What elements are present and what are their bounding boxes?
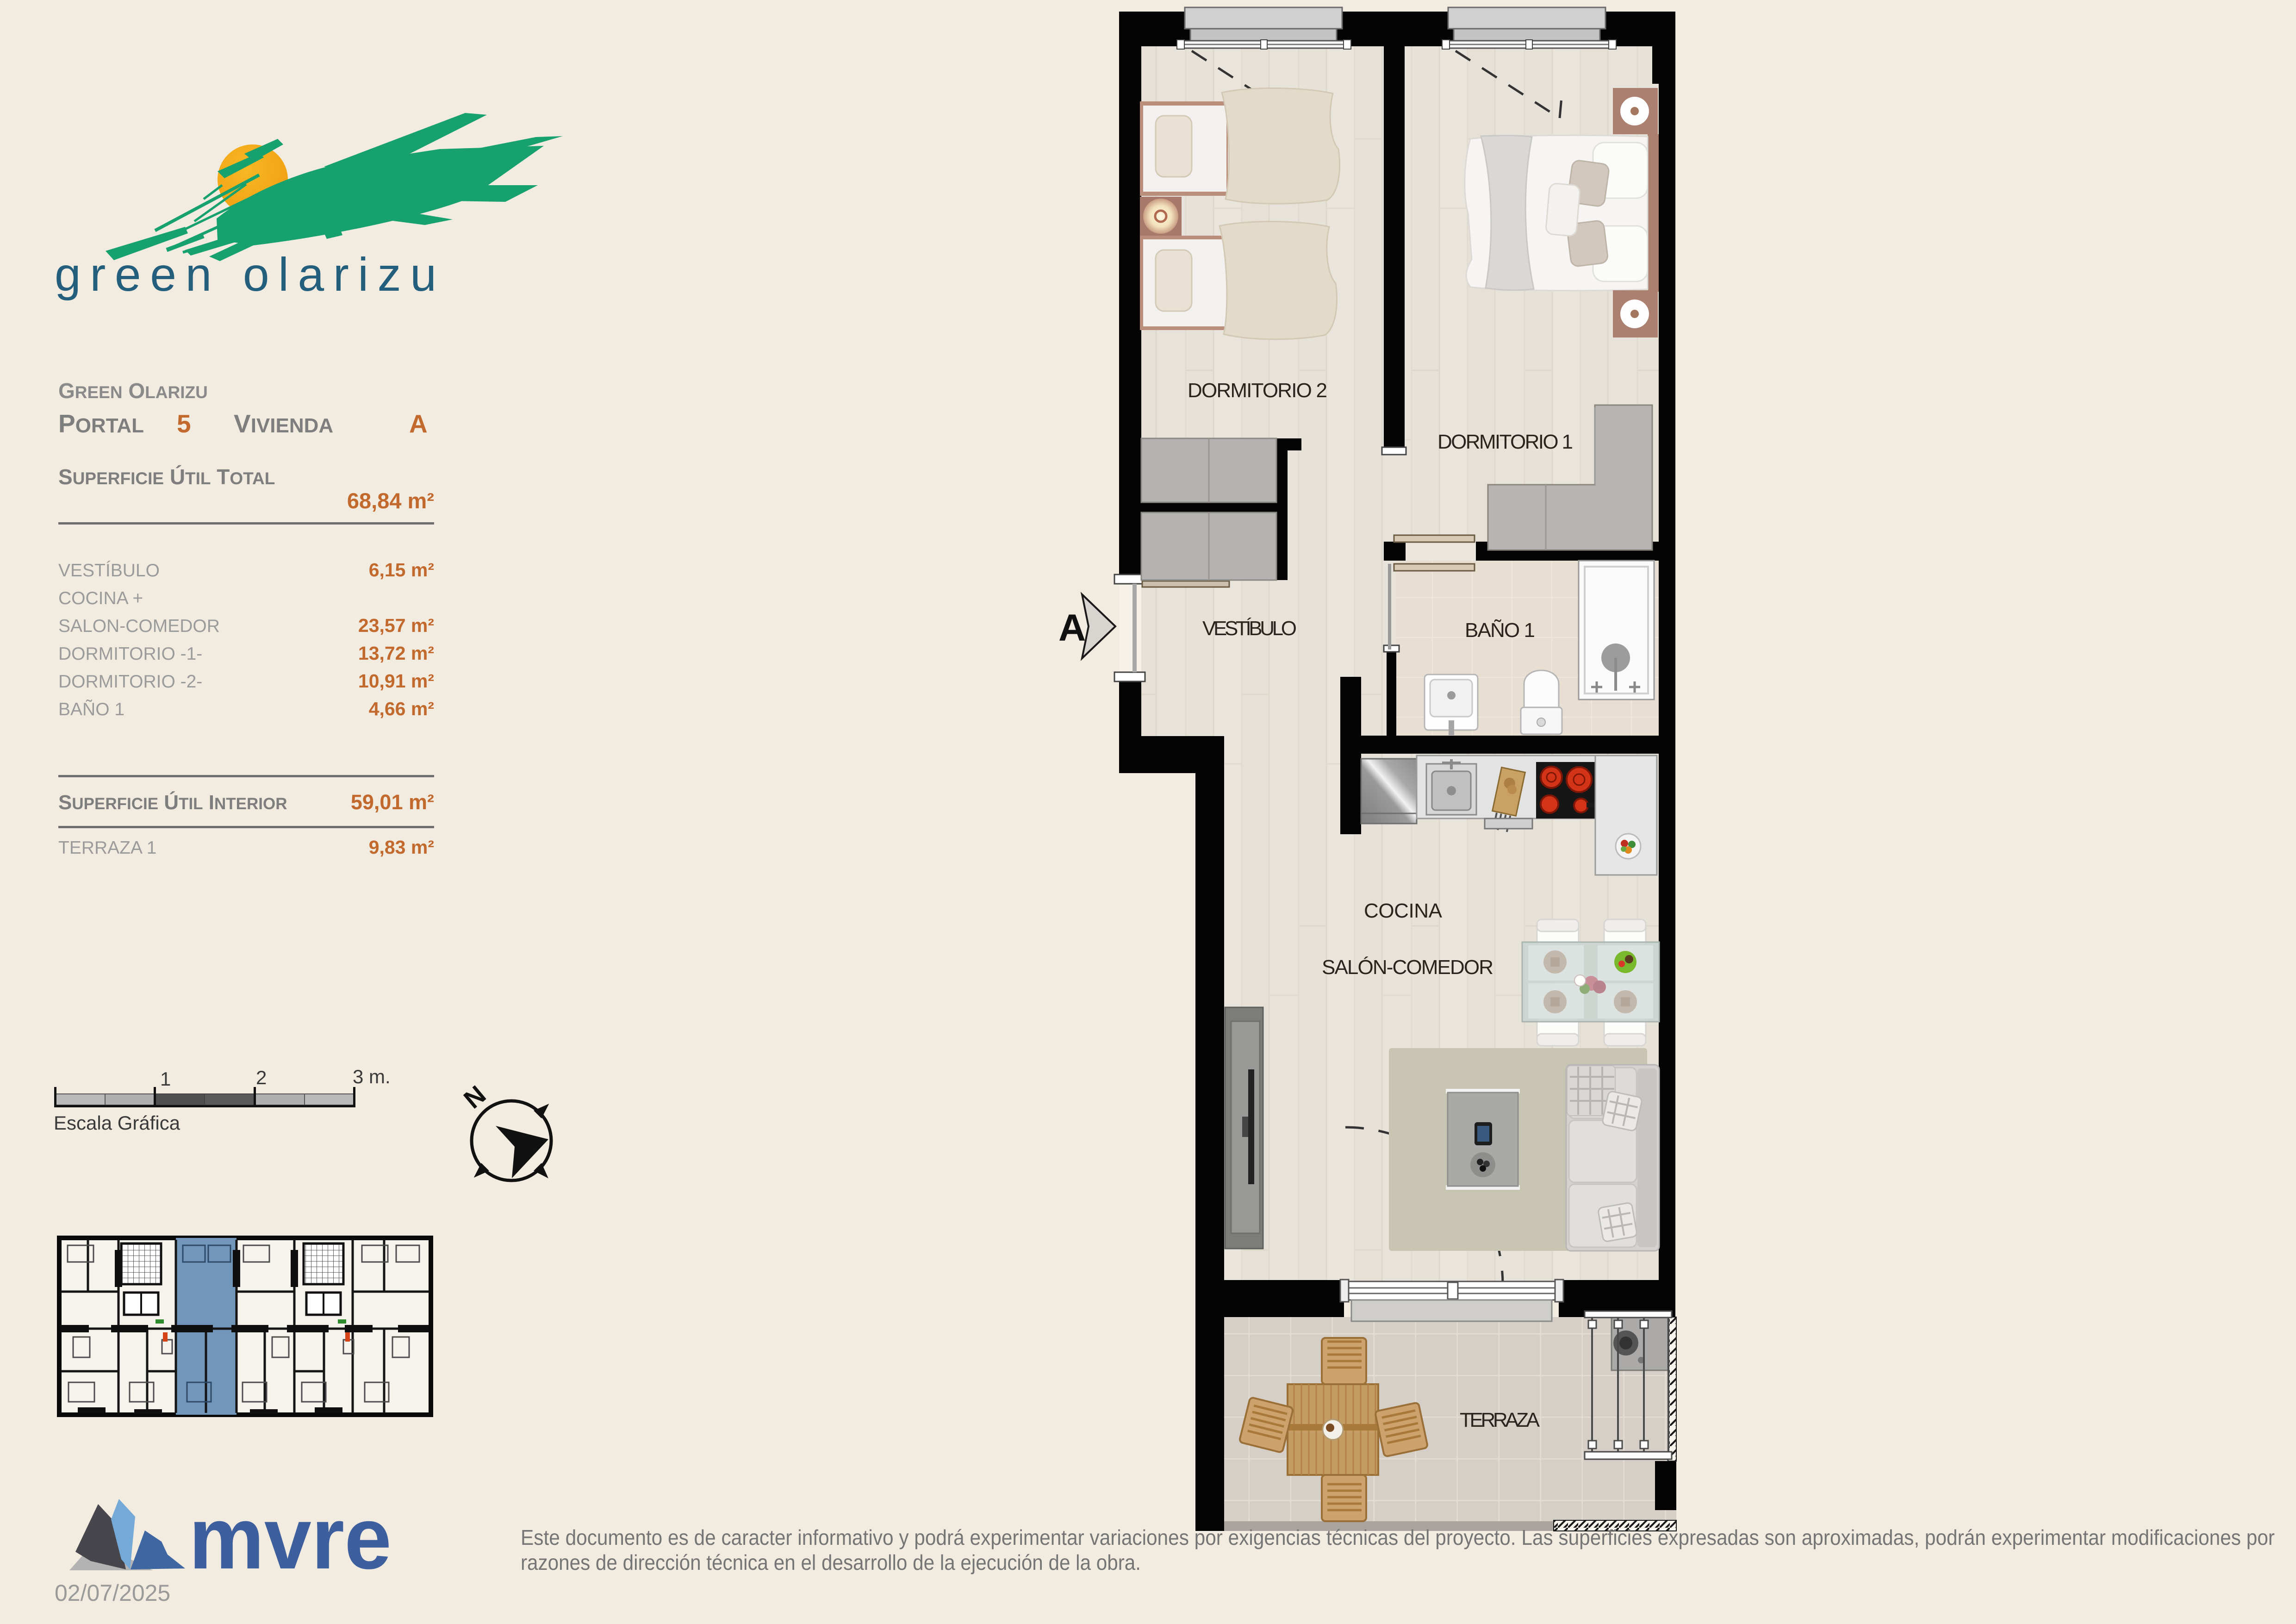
svg-text:2: 2 <box>256 1067 267 1088</box>
svg-text:1: 1 <box>160 1068 171 1090</box>
svg-text:3 m.: 3 m. <box>353 1066 391 1087</box>
svg-text:TERRAZA: TERRAZA <box>1460 1409 1540 1431</box>
svg-text:razones de dirección técnica e: razones de dirección técnica en el desar… <box>521 1550 1141 1574</box>
svg-text:9,83 m²: 9,83 m² <box>369 837 434 858</box>
svg-text:02/07/2025: 02/07/2025 <box>55 1580 170 1606</box>
svg-text:VESTÍBULO: VESTÍBULO <box>1202 617 1297 640</box>
svg-text:Este documento es de caracter: Este documento es de caracter informativ… <box>521 1525 2275 1549</box>
svg-text:VESTÍBULO: VESTÍBULO <box>58 561 160 581</box>
svg-text:Escala Gráfica: Escala Gráfica <box>54 1112 180 1134</box>
svg-text:COCINA: COCINA <box>1364 899 1443 922</box>
svg-text:68,84 m²: 68,84 m² <box>347 488 434 513</box>
svg-text:mvre: mvre <box>189 1489 392 1587</box>
svg-text:4,66 m²: 4,66 m² <box>369 698 434 719</box>
svg-text:SALON-COMEDOR: SALON-COMEDOR <box>58 616 220 636</box>
svg-text:6,15 m²: 6,15 m² <box>369 559 434 581</box>
svg-text:59,01 m²: 59,01 m² <box>351 790 434 814</box>
svg-text:DORMITORIO -1-: DORMITORIO -1- <box>58 644 202 664</box>
svg-text:A: A <box>1058 607 1086 649</box>
svg-text:DORMITORIO 2: DORMITORIO 2 <box>1188 379 1327 402</box>
svg-text:COCINA +: COCINA + <box>58 588 143 608</box>
svg-text:BAÑO 1: BAÑO 1 <box>58 700 124 719</box>
svg-text:BAÑO 1: BAÑO 1 <box>1465 618 1535 642</box>
svg-text:DORMITORIO -2-: DORMITORIO -2- <box>58 672 202 692</box>
svg-text:13,72 m²: 13,72 m² <box>358 643 434 664</box>
svg-text:10,91 m²: 10,91 m² <box>358 670 434 692</box>
svg-text:TERRAZA 1: TERRAZA 1 <box>58 838 156 858</box>
svg-text:SALÓN-COMEDOR: SALÓN-COMEDOR <box>1322 956 1493 979</box>
svg-text:23,57 m²: 23,57 m² <box>358 615 434 636</box>
svg-text:DORMITORIO 1: DORMITORIO 1 <box>1437 431 1573 453</box>
